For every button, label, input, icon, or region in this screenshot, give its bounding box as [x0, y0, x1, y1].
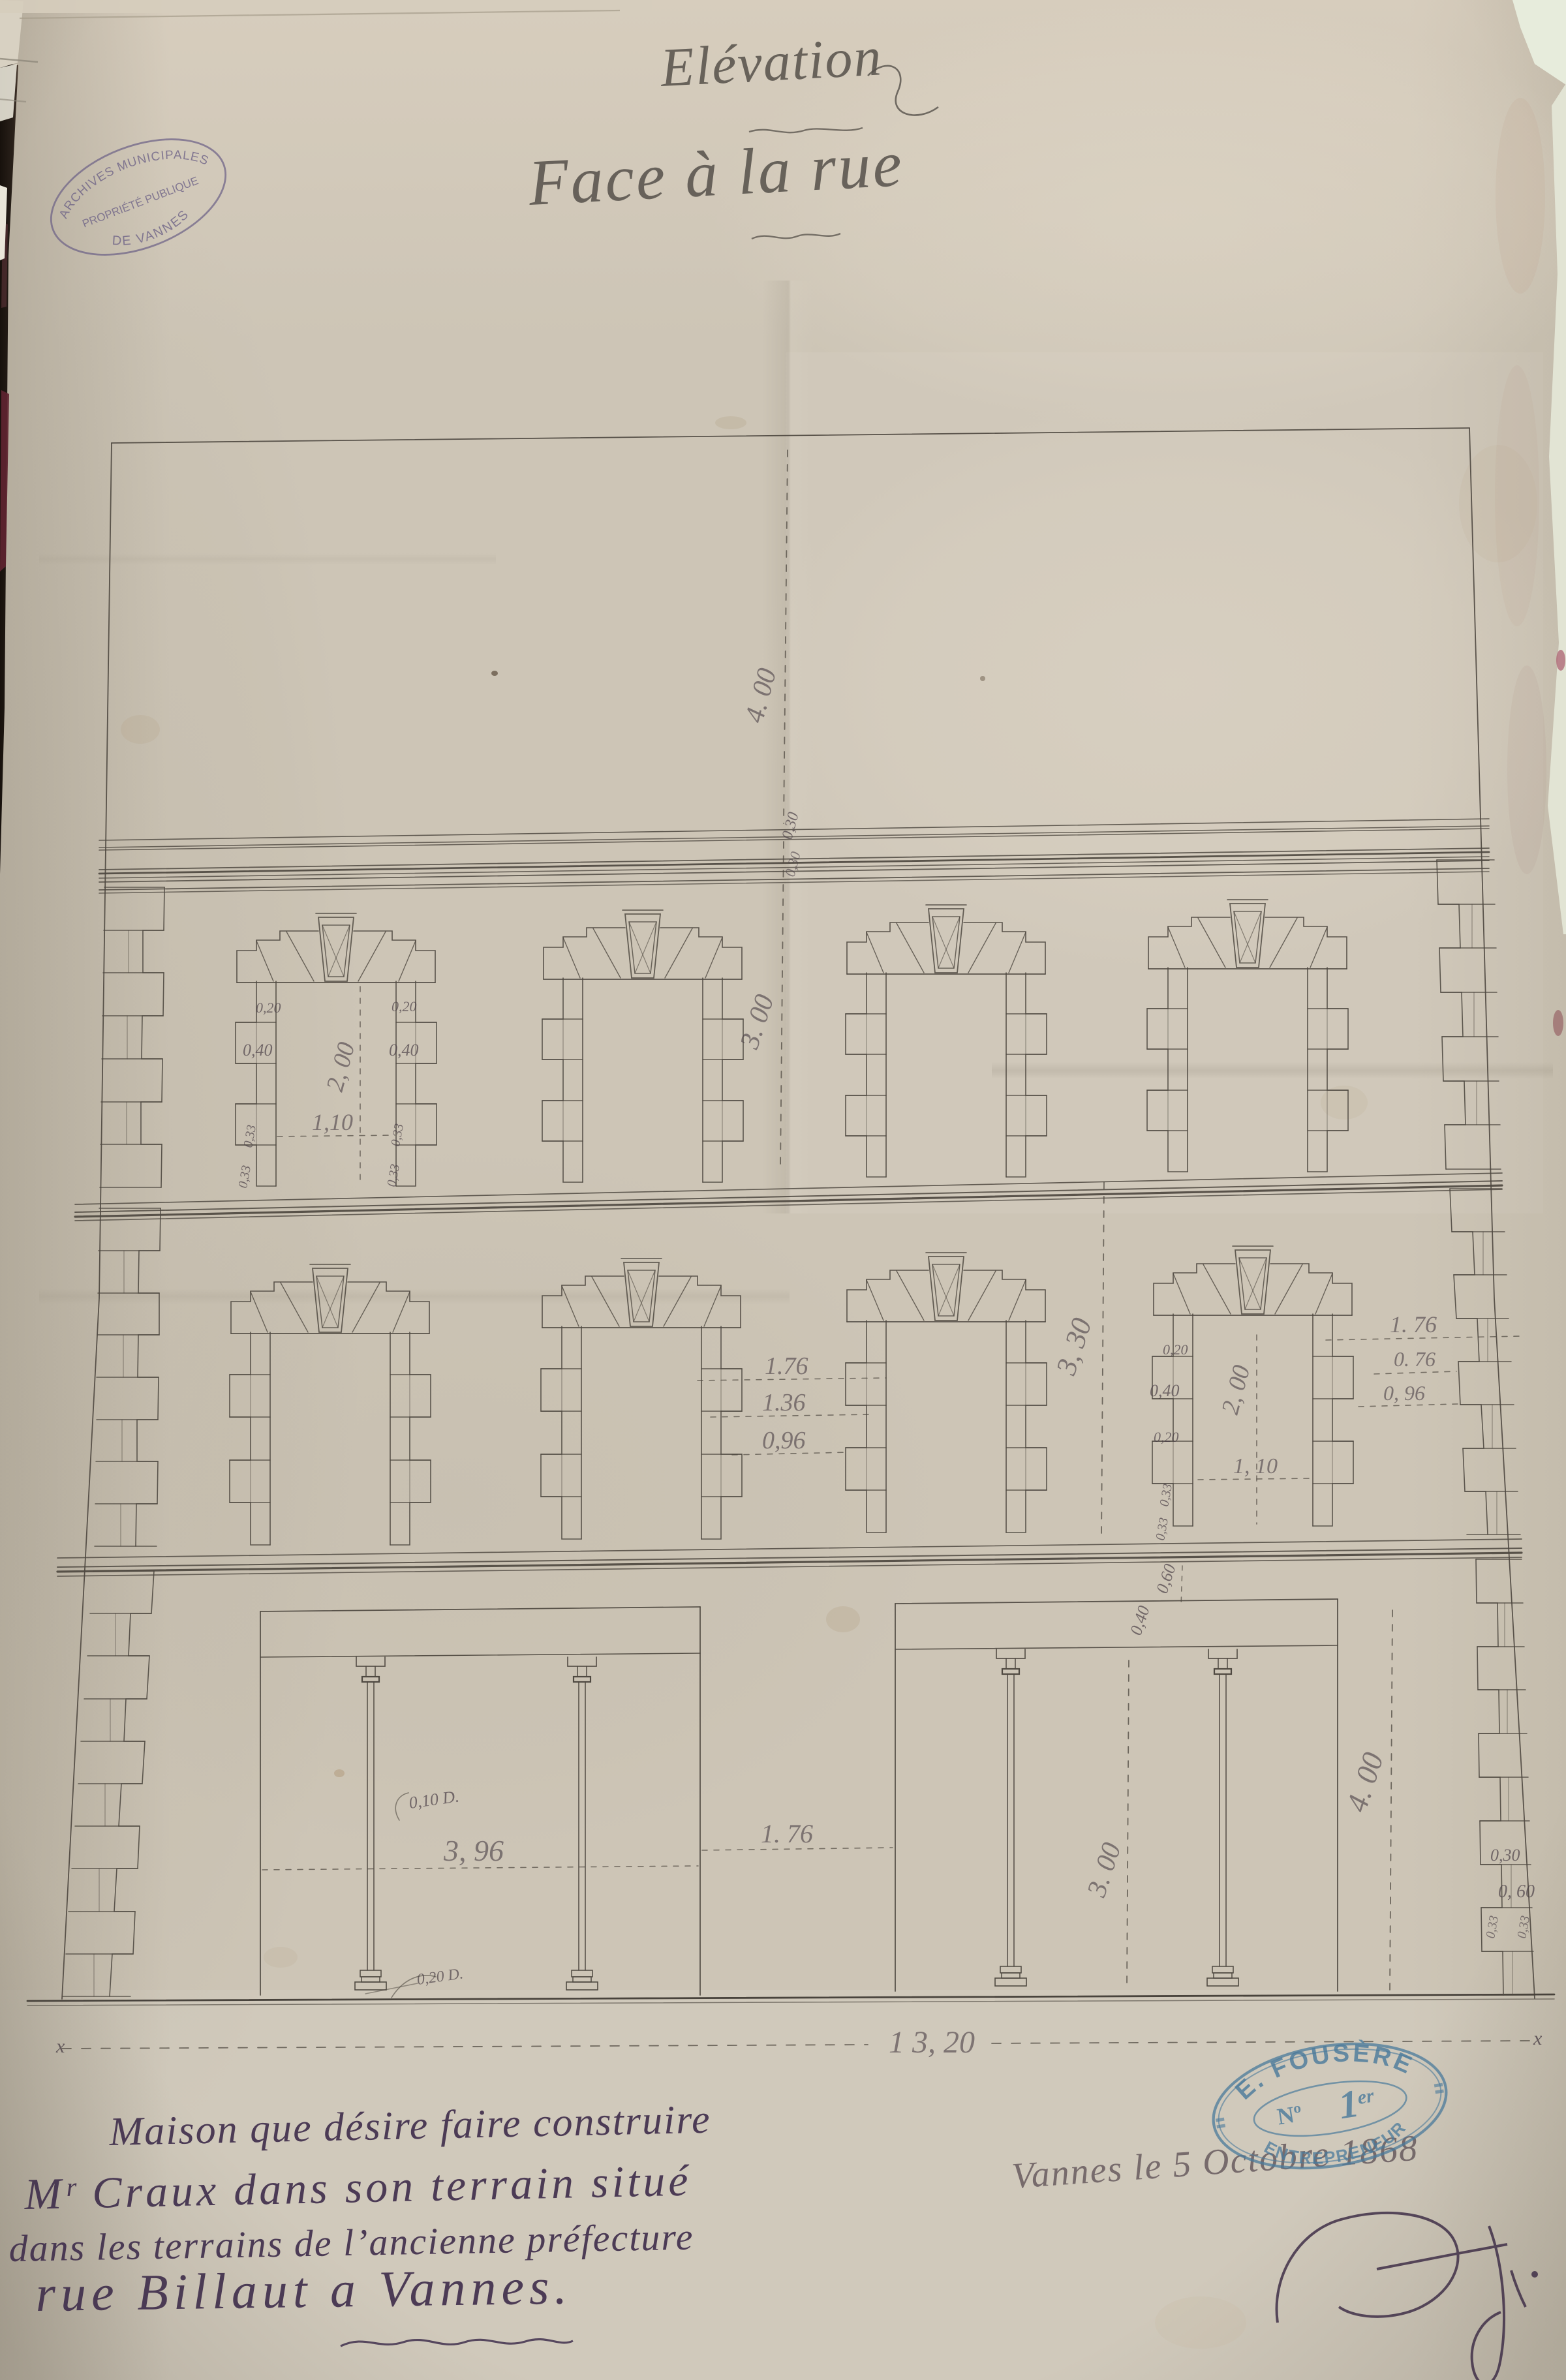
svg-text:0,40: 0,40: [389, 1041, 419, 1060]
svg-text:0, 60: 0, 60: [1498, 1882, 1535, 1902]
svg-text:Nº: Nº: [1276, 2100, 1304, 2129]
svg-text:1.36: 1.36: [762, 1389, 806, 1416]
svg-text:rue Billaut a Vannes.: rue Billaut a Vannes.: [35, 2258, 572, 2322]
svg-text:0,96: 0,96: [762, 1427, 806, 1454]
svg-text:0,20: 0,20: [1154, 1429, 1179, 1445]
svg-text:0,40: 0,40: [243, 1041, 273, 1060]
svg-text:x: x: [55, 2036, 65, 2057]
svg-text:0,40: 0,40: [1150, 1381, 1180, 1400]
svg-text:0. 76: 0. 76: [1394, 1347, 1435, 1371]
svg-text:0, 96: 0, 96: [1383, 1381, 1425, 1405]
svg-text:0,20: 0,20: [256, 999, 281, 1016]
svg-text:3, 96: 3, 96: [443, 1834, 504, 1867]
svg-text:1. 76: 1. 76: [1390, 1311, 1437, 1337]
svg-text:0,30: 0,30: [1490, 1846, 1520, 1865]
svg-text:1. 76: 1. 76: [761, 1819, 813, 1848]
svg-text:Elévation: Elévation: [658, 26, 883, 99]
svg-text:1 3, 20: 1 3, 20: [889, 2025, 975, 2060]
svg-text:1.76: 1.76: [765, 1352, 808, 1380]
svg-text:1,10: 1,10: [312, 1109, 353, 1135]
svg-text:0,20: 0,20: [1163, 1341, 1188, 1358]
svg-text:0,20: 0,20: [391, 998, 417, 1015]
svg-text:x: x: [1533, 2028, 1543, 2049]
svg-text:1, 10: 1, 10: [1233, 1454, 1278, 1478]
